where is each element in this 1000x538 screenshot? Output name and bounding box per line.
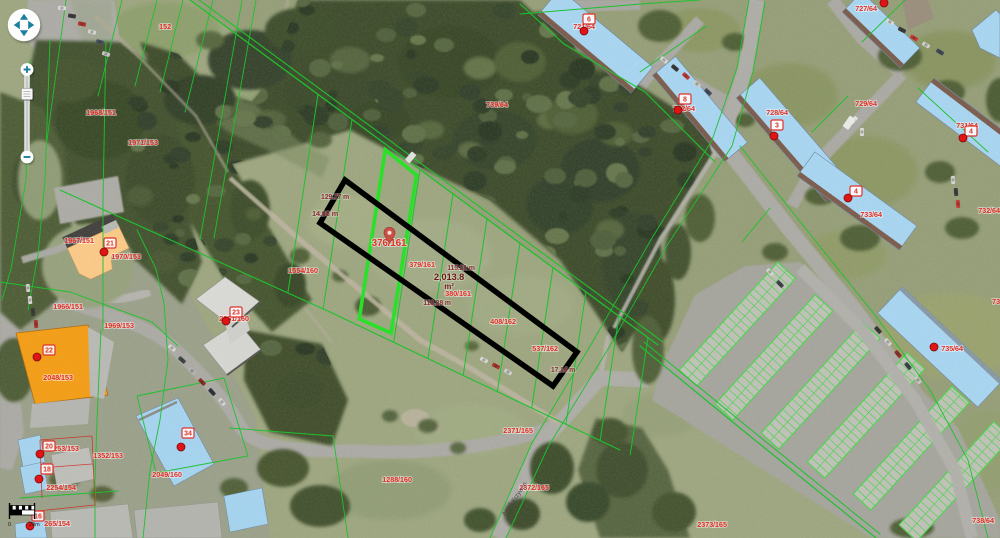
svg-text:3: 3: [775, 123, 779, 130]
svg-text:23: 23: [232, 310, 240, 317]
svg-text:2371/165: 2371/165: [503, 426, 533, 435]
svg-text:1968/151: 1968/151: [86, 108, 116, 117]
svg-text:17.14 m: 17.14 m: [551, 367, 575, 374]
svg-text:739/64: 739/64: [486, 100, 509, 109]
svg-text:14.98 m: 14.98 m: [312, 209, 339, 218]
svg-text:735/64: 735/64: [941, 344, 964, 353]
svg-text:733/64: 733/64: [860, 210, 883, 219]
svg-text:6: 6: [587, 17, 591, 24]
svg-text:16: 16: [34, 514, 42, 521]
svg-text:129.77 m: 129.77 m: [321, 194, 349, 201]
svg-text:728/64: 728/64: [766, 108, 789, 117]
svg-text:21: 21: [106, 241, 114, 248]
svg-text:118.28 m: 118.28 m: [423, 300, 451, 307]
svg-text:34: 34: [184, 431, 192, 438]
svg-text:20m: 20m: [29, 522, 40, 528]
svg-text:1352/153: 1352/153: [93, 451, 123, 460]
svg-text:1554/160: 1554/160: [288, 266, 318, 275]
svg-text:22: 22: [45, 348, 53, 355]
svg-text:1971/153: 1971/153: [128, 138, 158, 147]
svg-text:727/64: 727/64: [855, 4, 878, 13]
svg-text:2049/160: 2049/160: [152, 470, 182, 479]
svg-text:1966/151: 1966/151: [53, 302, 83, 311]
svg-text:73: 73: [992, 297, 1000, 306]
svg-text:2254/154: 2254/154: [46, 483, 77, 492]
svg-text:729/64: 729/64: [855, 99, 878, 108]
svg-text:8: 8: [683, 97, 687, 104]
svg-text:2373/165: 2373/165: [697, 520, 727, 529]
svg-text:265/154: 265/154: [44, 519, 71, 528]
svg-text:1967/151: 1967/151: [64, 236, 94, 245]
svg-text:m²: m²: [444, 282, 454, 291]
svg-text:18: 18: [43, 467, 51, 474]
svg-text:1969/153: 1969/153: [104, 321, 134, 330]
svg-text:1970/153: 1970/153: [111, 252, 141, 261]
svg-text:379/161: 379/161: [409, 260, 435, 269]
svg-text:4: 4: [969, 129, 973, 136]
svg-text:2048/153: 2048/153: [43, 373, 73, 382]
svg-text:537/162: 537/162: [532, 344, 558, 353]
svg-text:115.21 m: 115.21 m: [447, 265, 475, 272]
svg-text:1288/160: 1288/160: [382, 475, 412, 484]
svg-text:738/64: 738/64: [972, 516, 995, 525]
svg-text:0: 0: [8, 522, 11, 528]
svg-text:408/162: 408/162: [490, 317, 516, 326]
svg-text:732/64: 732/64: [978, 206, 1000, 215]
svg-text:4: 4: [854, 189, 858, 196]
svg-text:253/153: 253/153: [53, 444, 79, 453]
svg-text:152: 152: [159, 22, 171, 31]
svg-text:20: 20: [45, 444, 53, 451]
